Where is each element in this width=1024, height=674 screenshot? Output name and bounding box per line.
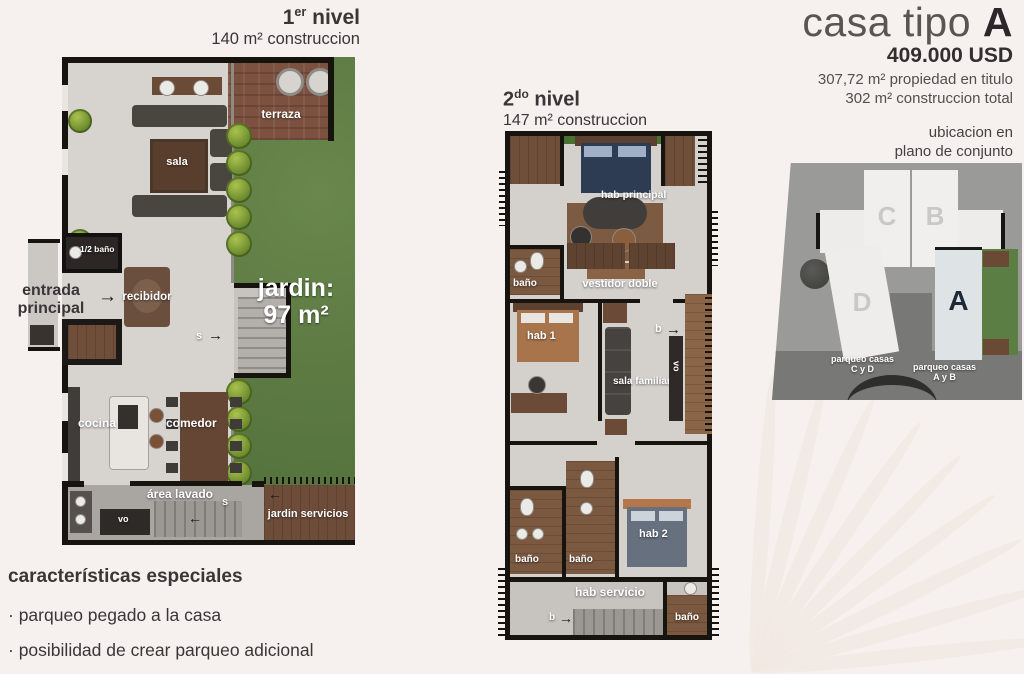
half-bath-label: 1/2 baño <box>80 245 114 254</box>
hab-servicio-label: hab servicio <box>555 586 665 599</box>
washer <box>70 491 92 533</box>
wall <box>66 481 84 487</box>
arrow-left-icon: ← <box>188 511 202 525</box>
chair <box>230 419 242 429</box>
feature-item-text: parqueo pegado a la casa <box>19 605 221 625</box>
pillow <box>618 146 646 157</box>
features-block: características especiales · parqueo peg… <box>8 566 438 660</box>
wall <box>505 635 712 640</box>
wall <box>252 481 264 487</box>
closet-wood <box>665 136 695 186</box>
chair <box>194 81 208 95</box>
sofa <box>132 195 227 217</box>
jardin-label-line1: jardin: <box>240 275 352 302</box>
property-size: 307,72 m² propiedad en titulo <box>700 71 1013 88</box>
cocina-label: cocina <box>78 417 116 430</box>
vo-label: vo <box>671 361 681 372</box>
balcon-b-label: b <box>655 324 662 336</box>
chair <box>230 463 242 473</box>
site-plan: C B D A parqueo casas C y D parqueo casa… <box>772 163 1022 400</box>
planter-pot <box>276 68 304 96</box>
bano1-label: baño <box>515 555 539 566</box>
toilet <box>521 499 533 515</box>
wall <box>62 57 334 63</box>
jardin-label-line2: 97 m² <box>240 302 352 329</box>
bullet-icon: · <box>8 640 14 660</box>
stool <box>150 435 163 448</box>
construction-size: 302 m² construccion total <box>700 90 1013 107</box>
wall <box>28 239 60 243</box>
feature-item-text: posibilidad de crear parqueo adicional <box>19 640 314 660</box>
sink <box>581 503 592 514</box>
level2-title: 2do nivel <box>503 87 647 112</box>
toilet <box>581 471 593 487</box>
feature-item: · posibilidad de crear parqueo adicional <box>8 640 438 660</box>
comedor-label: comedor <box>166 417 217 430</box>
chair <box>166 441 178 451</box>
hatch <box>712 568 719 638</box>
shrub <box>226 123 252 149</box>
sofa <box>605 327 631 415</box>
window <box>62 85 68 111</box>
closet-wood <box>567 243 625 269</box>
bed-principal <box>581 143 651 193</box>
area-lavado-label: área lavado <box>138 488 222 501</box>
pillow <box>631 511 655 521</box>
entrada-line2: principal <box>5 300 97 318</box>
shrub <box>226 204 252 230</box>
closet-wood <box>68 325 116 359</box>
wall <box>328 57 334 141</box>
shrub <box>226 177 252 203</box>
casa-header: casa tipo A 409.000 USD 307,72 m² propie… <box>700 2 1013 107</box>
kitchen-counter <box>68 387 80 482</box>
sala-familiar-label: sala familiar <box>613 377 671 388</box>
balcony-railing-hatch <box>705 297 712 431</box>
sink <box>685 583 696 594</box>
closet-wood <box>629 243 675 269</box>
entrada-line1: entrada <box>5 282 97 300</box>
level1-title-block: 1er nivel 140 m² construccion <box>140 5 360 49</box>
sink <box>515 261 526 272</box>
stool <box>150 409 163 422</box>
vestidor-label: vestidor doble <box>560 279 680 291</box>
parqueo-cd-line2: C y D <box>820 365 905 375</box>
level1-title: 1er nivel <box>140 5 360 30</box>
wall <box>1001 213 1005 249</box>
parqueo-ab-line2: A y B <box>902 373 987 383</box>
price: 409.000 USD <box>700 44 1013 68</box>
bullet-icon: · <box>8 605 14 625</box>
floorplan-level2: hab principal baño vestidor doble hab 1 … <box>505 131 712 640</box>
vo-shaft <box>669 336 683 421</box>
siteplan-caption: ubicacion en plano de conjunto <box>700 124 1013 162</box>
arrow-right-icon: → <box>98 287 117 306</box>
pillow <box>521 313 545 323</box>
house-d-letter: D <box>834 287 890 318</box>
arrow-right-icon: → <box>666 322 681 337</box>
features-heading: características especiales <box>8 566 438 588</box>
entry-bench <box>30 325 54 345</box>
chair <box>230 397 242 407</box>
hab1-label: hab 1 <box>527 331 556 343</box>
sofa <box>132 105 227 127</box>
casa-title-prefix: casa tipo <box>802 0 983 45</box>
bano-servicio-label: baño <box>667 613 707 624</box>
sink <box>517 529 527 539</box>
hab-principal-label: hab principal <box>601 190 666 201</box>
house-b-letter: B <box>912 201 958 232</box>
level2-title-block: 2do nivel 147 m² construccion <box>503 87 647 130</box>
lavado-s-label: s <box>222 497 228 509</box>
chair <box>166 463 178 473</box>
hatch <box>264 477 355 484</box>
wall <box>505 441 597 445</box>
parqueo-cd-label: parqueo casas C y D <box>820 355 905 374</box>
pillow <box>549 313 573 323</box>
siteplan-caption-line2: plano de conjunto <box>700 143 1013 162</box>
stairs-down <box>573 609 665 635</box>
jardin-label: jardin: 97 m² <box>240 275 352 329</box>
desk-chair <box>529 377 545 393</box>
pillow <box>659 511 683 521</box>
arrow-left-icon: ← <box>268 487 282 501</box>
sink <box>533 529 543 539</box>
plant <box>68 109 92 133</box>
side-table <box>605 419 627 435</box>
pergola <box>983 339 1009 355</box>
kitchen-island <box>110 397 148 469</box>
chair <box>230 441 242 451</box>
hab2-label: hab 2 <box>639 529 668 541</box>
window <box>62 149 68 175</box>
arrow-right-icon: → <box>208 328 223 343</box>
wall <box>635 441 712 445</box>
ottoman <box>583 197 647 229</box>
hatch <box>499 171 505 226</box>
wall <box>28 347 60 351</box>
hatch <box>712 211 718 266</box>
wall <box>62 57 68 233</box>
wall <box>234 373 291 378</box>
entry-closet <box>62 319 122 365</box>
arrow-right-icon: → <box>559 611 573 625</box>
washer-door <box>76 515 85 524</box>
casa-title-letter: A <box>983 0 1013 45</box>
brochure-page: 1er nivel 140 m² construccion terraza <box>0 0 1024 674</box>
wall <box>598 299 602 421</box>
wall <box>130 481 242 486</box>
stairs-s-label: s <box>196 331 202 343</box>
tree <box>800 259 830 289</box>
closet-wood <box>510 136 560 184</box>
sala-label: sala <box>148 157 206 169</box>
level1-subtitle: 140 m² construccion <box>140 30 360 49</box>
wall <box>661 136 665 186</box>
toilet <box>531 253 543 269</box>
vo-label: vo <box>118 515 129 525</box>
level2-subtitle: 147 m² construccion <box>503 112 647 130</box>
entrada-annotation: entrada principal <box>5 282 97 319</box>
wall <box>560 136 564 186</box>
pergola <box>983 251 1009 267</box>
wall <box>615 457 619 578</box>
jardin-servicios-label: jardin servicios <box>262 509 354 521</box>
parqueo-ab-label: parqueo casas A y B <box>902 363 987 382</box>
wall <box>816 213 820 249</box>
casa-title: casa tipo A <box>700 2 1013 43</box>
terraza-label: terraza <box>246 108 316 121</box>
feature-item: · parqueo pegado a la casa <box>8 605 438 625</box>
servicio-b-label: b <box>549 613 555 624</box>
bano-principal-label: baño <box>513 279 537 290</box>
shrub <box>226 150 252 176</box>
bano2-label: baño <box>569 555 593 566</box>
house-a-letter: A <box>935 285 982 317</box>
wall <box>560 245 564 299</box>
siteplan-caption-line1: ubicacion en <box>700 124 1013 143</box>
media-console <box>603 303 627 323</box>
washer-door <box>76 497 85 506</box>
chair <box>160 81 174 95</box>
dining-table <box>180 392 228 484</box>
chair <box>166 397 178 407</box>
stove <box>118 405 138 429</box>
hatch <box>498 568 505 638</box>
desk <box>511 393 567 413</box>
pillow <box>584 146 612 157</box>
house-c-letter: C <box>864 201 910 232</box>
shrub <box>226 231 252 257</box>
